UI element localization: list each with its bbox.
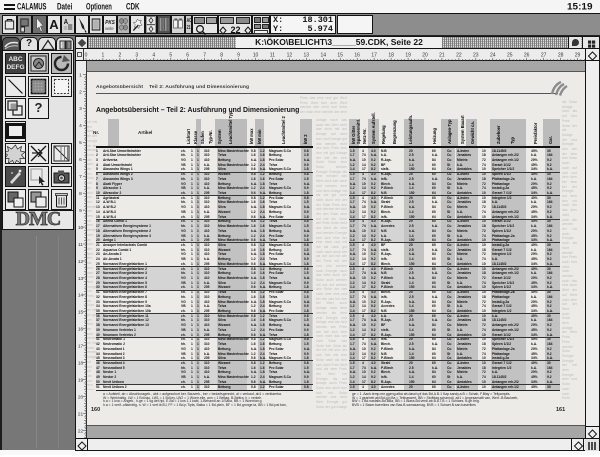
svg-text:14: 14 bbox=[321, 52, 327, 58]
svg-text:21: 21 bbox=[187, 24, 191, 30]
svg-text:14: 14 bbox=[78, 293, 84, 299]
svg-text:5: 5 bbox=[169, 52, 172, 58]
svg-text:11: 11 bbox=[78, 242, 83, 248]
svg-text:21: 21 bbox=[78, 411, 84, 417]
svg-text:3: 3 bbox=[135, 52, 138, 58]
svg-text:18: 18 bbox=[78, 361, 84, 367]
svg-text:9: 9 bbox=[79, 208, 82, 214]
svg-text:9: 9 bbox=[237, 52, 240, 58]
svg-text:13: 13 bbox=[78, 276, 84, 282]
svg-text:15: 15 bbox=[78, 310, 84, 316]
svg-text:write: write bbox=[105, 26, 114, 31]
svg-text:26: 26 bbox=[524, 52, 530, 58]
svg-text:1: 1 bbox=[79, 72, 82, 78]
svg-text:0: 0 bbox=[85, 52, 88, 58]
svg-text:28: 28 bbox=[558, 52, 564, 58]
svg-text:23: 23 bbox=[473, 52, 479, 58]
svg-text:6: 6 bbox=[79, 157, 82, 163]
svg-text:11: 11 bbox=[270, 52, 275, 58]
svg-text:21: 21 bbox=[439, 52, 445, 58]
svg-text:19: 19 bbox=[405, 52, 411, 58]
svg-text:8: 8 bbox=[79, 191, 82, 197]
svg-text:15: 15 bbox=[337, 52, 343, 58]
svg-text:12: 12 bbox=[78, 259, 84, 265]
svg-text:24: 24 bbox=[490, 52, 496, 58]
svg-text:8: 8 bbox=[220, 52, 223, 58]
svg-text:4: 4 bbox=[79, 123, 82, 129]
svg-text:4: 4 bbox=[152, 52, 155, 58]
svg-text:27: 27 bbox=[541, 52, 547, 58]
svg-text:17: 17 bbox=[371, 52, 377, 58]
svg-text:5: 5 bbox=[79, 140, 82, 146]
svg-text:22: 22 bbox=[78, 428, 84, 434]
svg-text:20: 20 bbox=[422, 52, 428, 58]
svg-text:13: 13 bbox=[304, 52, 310, 58]
svg-text:2: 2 bbox=[119, 52, 122, 58]
svg-text:20: 20 bbox=[78, 394, 84, 400]
svg-text:22: 22 bbox=[456, 52, 462, 58]
svg-text:19: 19 bbox=[78, 378, 84, 384]
svg-text:16: 16 bbox=[78, 327, 84, 333]
svg-text:7: 7 bbox=[203, 52, 206, 58]
svg-text:17: 17 bbox=[78, 344, 84, 350]
svg-text:16: 16 bbox=[354, 52, 360, 58]
svg-text:29: 29 bbox=[575, 52, 581, 58]
svg-text:AC: AC bbox=[187, 17, 191, 23]
svg-text:2: 2 bbox=[79, 89, 82, 95]
svg-text:10: 10 bbox=[253, 52, 259, 58]
svg-text:6: 6 bbox=[186, 52, 189, 58]
svg-text:25: 25 bbox=[507, 52, 513, 58]
svg-text:3: 3 bbox=[79, 106, 82, 112]
svg-text:7: 7 bbox=[79, 174, 82, 180]
svg-text:12: 12 bbox=[287, 52, 293, 58]
svg-text:18: 18 bbox=[388, 52, 394, 58]
svg-text:10: 10 bbox=[78, 225, 84, 231]
svg-text:1: 1 bbox=[102, 52, 105, 58]
svg-text:A: A bbox=[64, 19, 69, 27]
